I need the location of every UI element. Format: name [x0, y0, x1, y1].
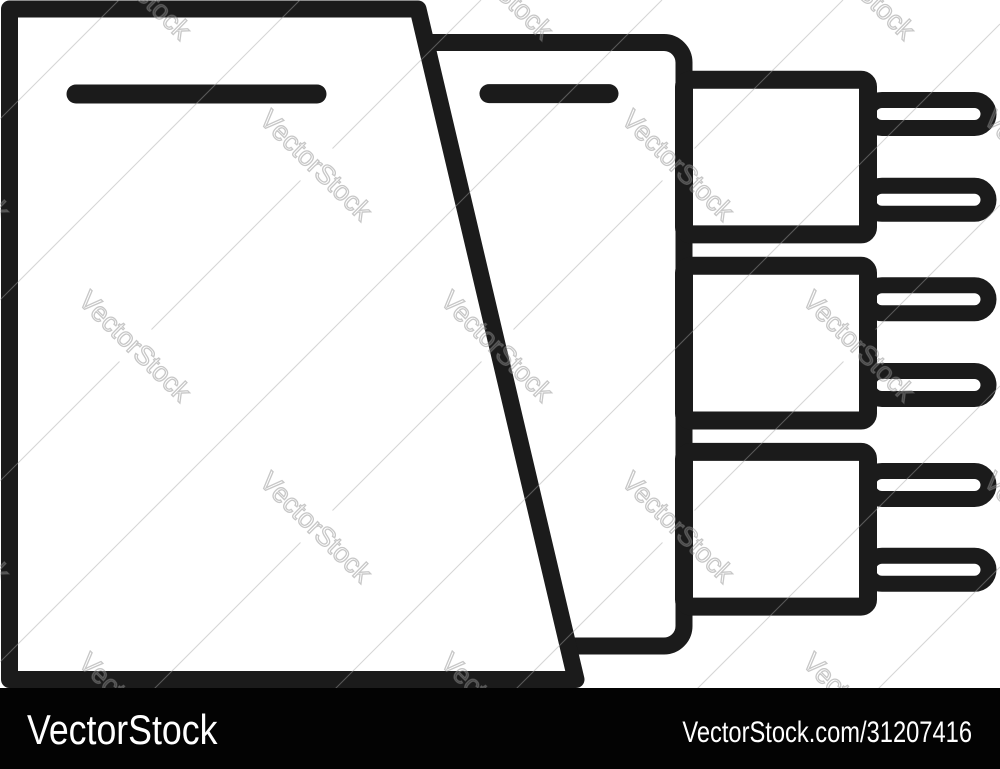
svg-text:VectorStock.com/31207416: VectorStock.com/31207416	[682, 715, 972, 748]
svg-text:VectorStock: VectorStock	[27, 707, 218, 753]
svg-text:VectorStock: VectorStock	[797, 0, 921, 46]
